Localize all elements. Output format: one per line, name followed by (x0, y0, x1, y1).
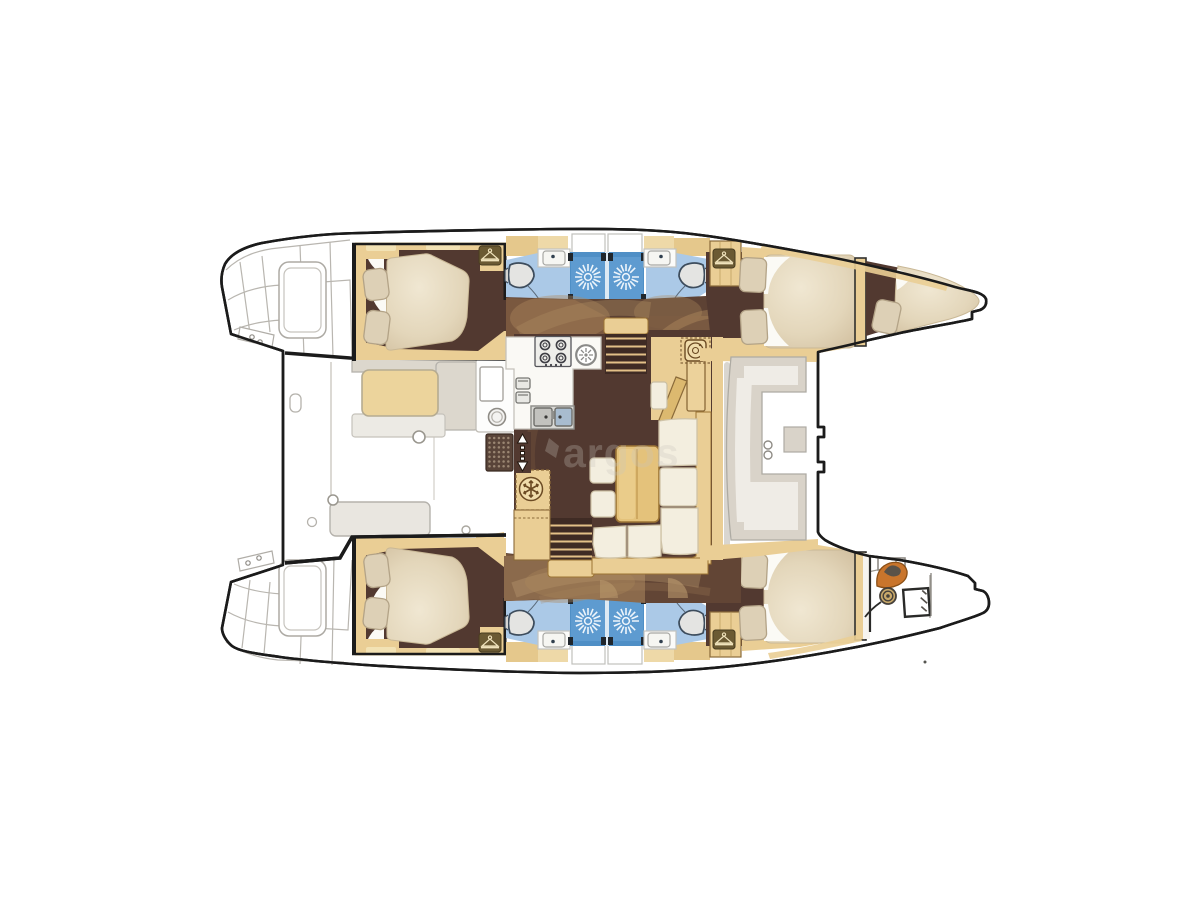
svg-text:argos: argos (563, 430, 680, 476)
